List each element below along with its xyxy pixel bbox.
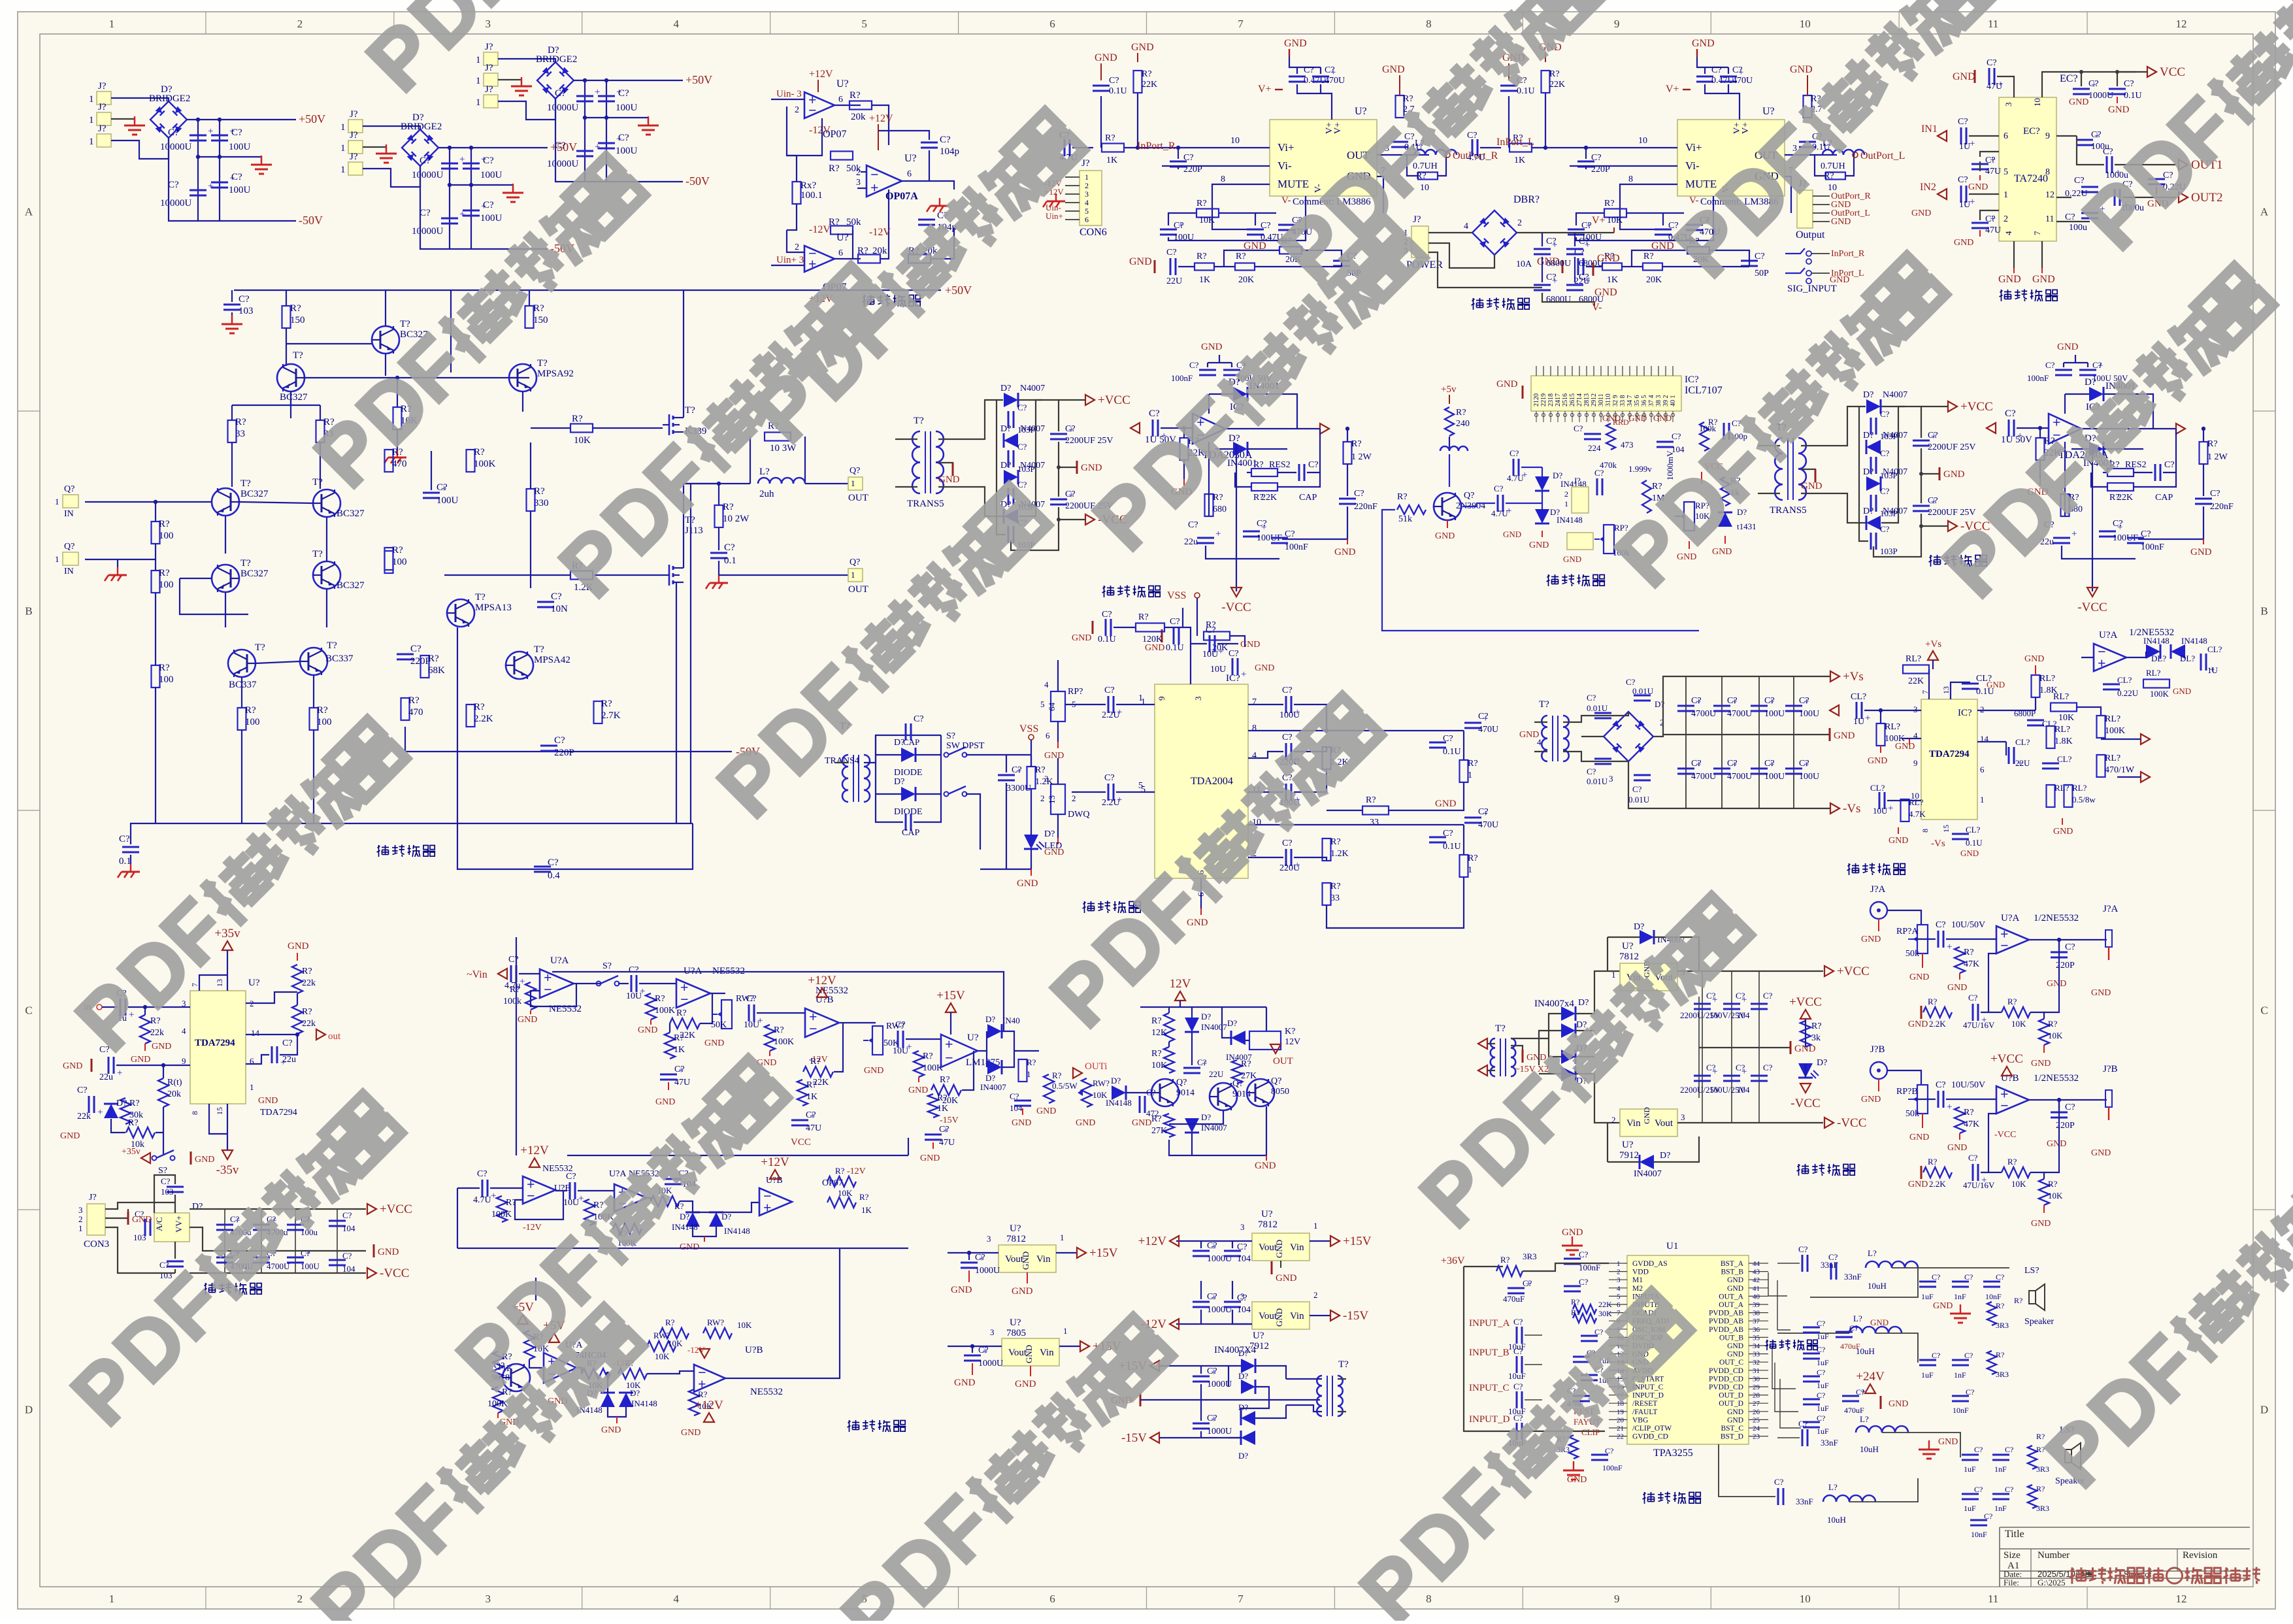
svg-text:13: 13 [1047, 795, 1057, 804]
svg-text:R?: R? [408, 695, 420, 706]
svg-text:3011: 3011 [1598, 393, 1605, 406]
svg-text:TDA2004: TDA2004 [1191, 776, 1233, 787]
svg-text:2: 2 [1085, 181, 1089, 190]
svg-text:1K: 1K [806, 1092, 817, 1102]
svg-text:3: 3 [1240, 1222, 1245, 1232]
svg-text:GND: GND [60, 1131, 80, 1141]
svg-text:47K: 47K [1964, 1119, 1979, 1129]
svg-text:DL?: DL? [2151, 654, 2166, 663]
svg-text:6800U: 6800U [1546, 259, 1571, 269]
svg-text:-Vs: -Vs [1931, 838, 1945, 849]
svg-text:4: 4 [1085, 198, 1089, 207]
svg-text:RL?: RL? [2072, 783, 2087, 793]
svg-text:C?: C? [1828, 1252, 1838, 1262]
svg-text:22: 22 [1617, 1433, 1624, 1441]
svg-text:9: 9 [1157, 697, 1166, 701]
svg-text:V+: V+ [1258, 84, 1272, 95]
svg-text:+15V: +15V [1089, 1246, 1118, 1260]
svg-text:2219: 2219 [1540, 393, 1547, 406]
svg-text:C?: C? [1523, 1278, 1532, 1288]
svg-text:C?: C? [1109, 76, 1119, 86]
svg-text:C?: C? [1207, 1367, 1217, 1376]
svg-text:38: 38 [1753, 1310, 1760, 1317]
svg-text:12: 12 [2176, 1593, 2187, 1605]
svg-text:R?: R? [159, 663, 170, 673]
svg-text:GND: GND [1503, 529, 1521, 539]
svg-text:GND: GND [1908, 1180, 1928, 1189]
svg-text:GND: GND [1255, 1161, 1276, 1171]
svg-text:C?: C? [1849, 1323, 1858, 1333]
svg-text:20k: 20k [167, 1089, 181, 1099]
svg-text:19: 19 [1617, 1408, 1625, 1416]
svg-text:100U: 100U [1799, 772, 1819, 782]
svg-text:10: 10 [1638, 136, 1647, 146]
svg-text:RES2: RES2 [2125, 460, 2147, 470]
svg-text:1: 1 [1617, 1260, 1621, 1268]
svg-text:C?: C? [1229, 649, 1239, 659]
svg-text:C?: C? [161, 1176, 171, 1186]
svg-text:10K: 10K [2048, 1031, 2063, 1040]
svg-text:100K: 100K [2150, 689, 2169, 699]
svg-text:J?A: J?A [1870, 884, 1885, 895]
svg-text:U?: U? [1253, 1331, 1264, 1341]
svg-text:C?: C? [1207, 1241, 1217, 1251]
svg-text:10K: 10K [668, 1338, 683, 1348]
svg-text:R?: R? [674, 1201, 684, 1211]
svg-text:1: 1 [109, 1593, 115, 1605]
svg-text:C?: C? [618, 88, 629, 99]
svg-text:TDA7294: TDA7294 [1929, 749, 1970, 759]
svg-text:GND: GND [1861, 1095, 1881, 1104]
svg-text:OutPort_L: OutPort_L [1860, 150, 1905, 161]
svg-text:10U: 10U [626, 991, 642, 1001]
svg-text:+: + [1218, 646, 1223, 657]
svg-text:5: 5 [1617, 1293, 1621, 1301]
svg-text:C?: C? [1691, 696, 1702, 706]
svg-text:T?: T? [255, 642, 265, 653]
svg-text:Vin: Vin [1626, 1118, 1641, 1129]
svg-text:Title: Title [2005, 1529, 2024, 1540]
svg-text:100: 100 [159, 674, 174, 685]
svg-text:GND: GND [1526, 1053, 1546, 1063]
svg-text:C?: C? [1763, 991, 1773, 1001]
svg-text:29: 29 [1753, 1384, 1760, 1391]
svg-text:4.7U: 4.7U [473, 1195, 491, 1205]
svg-text:1.999v: 1.999v [1628, 464, 1652, 474]
svg-text:GND: GND [1790, 64, 1813, 75]
svg-text:R?: R? [1549, 69, 1560, 79]
svg-text:J?: J? [98, 124, 107, 134]
svg-text:2200UF 25V: 2200UF 25V [1065, 436, 1114, 446]
svg-text:1 2W: 1 2W [1351, 452, 1372, 462]
svg-text:R?: R? [859, 1192, 869, 1202]
svg-text:6: 6 [1980, 765, 1985, 774]
svg-text:R?: R? [534, 486, 545, 497]
svg-text:2: 2 [1040, 793, 1045, 803]
svg-text:9014: 9014 [1176, 1088, 1195, 1098]
svg-text:10K: 10K [655, 1351, 670, 1361]
svg-text:CAP: CAP [1299, 493, 1317, 503]
svg-text:V+: V+ [1666, 84, 1679, 95]
svg-text:1: 1 [78, 1223, 83, 1233]
svg-text:GND: GND [1953, 71, 1975, 82]
svg-text:4: 4 [1252, 751, 1257, 761]
svg-text:IN2: IN2 [1920, 182, 1936, 193]
svg-text:100U: 100U [1279, 710, 1300, 720]
svg-text:C?: C? [77, 1085, 88, 1095]
svg-text:C?: C? [566, 1172, 576, 1182]
svg-text:GND: GND [1889, 836, 1908, 846]
svg-text:GND: GND [1653, 413, 1672, 423]
svg-text:R?: R? [1571, 1308, 1579, 1317]
svg-text:G:\2025: G:\2025 [2037, 1578, 2066, 1587]
svg-text:10000U: 10000U [160, 198, 192, 208]
svg-text:50P: 50P [1755, 269, 1769, 278]
svg-text:C?: C? [975, 1253, 985, 1263]
svg-text:D?: D? [1238, 1451, 1248, 1461]
svg-text:+: + [1947, 1102, 1952, 1112]
svg-text:R?: R? [2048, 1179, 2058, 1189]
svg-text:1uF: 1uF [1817, 1404, 1829, 1413]
svg-text:3: 3 [856, 178, 861, 188]
svg-text:22K: 22K [2117, 493, 2133, 503]
svg-text:C?: C? [1513, 1346, 1523, 1356]
svg-text:C?: C? [1282, 838, 1293, 848]
svg-text:+15V: +15V [1343, 1235, 1372, 1248]
svg-text:22U: 22U [1209, 1069, 1224, 1079]
svg-text:R?: R? [245, 705, 256, 716]
svg-text:100: 100 [159, 531, 174, 541]
svg-text:GND: GND [2108, 105, 2130, 115]
svg-text:1uF: 1uF [1817, 1332, 1829, 1341]
svg-text:2: 2 [1611, 1115, 1616, 1125]
svg-text:Q?: Q? [1271, 1076, 1281, 1086]
svg-text:1000U: 1000U [2088, 91, 2113, 101]
svg-text:C?: C? [1880, 524, 1890, 534]
svg-text:C?: C? [1257, 519, 1267, 529]
svg-text:GND: GND [2053, 827, 2073, 837]
svg-text:T?: T? [914, 416, 924, 426]
svg-text:1: 1 [89, 137, 94, 147]
svg-text:50k: 50k [1905, 1109, 1919, 1119]
svg-text:1: 1 [89, 94, 94, 105]
svg-text:R?: R? [1196, 199, 1207, 208]
svg-text:0.1: 0.1 [724, 555, 736, 566]
svg-text:C?: C? [914, 714, 924, 724]
svg-text:35: 35 [1753, 1334, 1760, 1342]
svg-text:C?: C? [1149, 408, 1160, 419]
svg-text:27K: 27K [1241, 1071, 1257, 1081]
svg-text:15: 15 [215, 1107, 224, 1115]
svg-text:1.8K: 1.8K [2054, 737, 2073, 746]
svg-text:C?: C? [1513, 1317, 1523, 1327]
svg-text:4700U: 4700U [1691, 709, 1716, 719]
svg-text:C?: C? [1237, 1293, 1247, 1303]
svg-text:C?: C? [1546, 273, 1557, 282]
svg-text:J?: J? [485, 42, 493, 52]
svg-text:IN4007X4: IN4007X4 [1214, 1345, 1257, 1355]
svg-text:C?: C? [483, 200, 494, 210]
svg-text:1: 1 [1313, 1221, 1318, 1231]
svg-text:2.2K: 2.2K [474, 714, 493, 724]
svg-text:+50V: +50V [945, 284, 972, 297]
svg-text:5: 5 [2004, 167, 2008, 177]
svg-text:C?: C? [420, 156, 431, 166]
svg-text:C?: C? [1104, 773, 1115, 783]
svg-text:R?: R? [698, 1389, 708, 1399]
svg-text:100: 100 [159, 580, 174, 590]
svg-text:+: + [578, 1193, 584, 1204]
svg-text:10U: 10U [744, 1020, 759, 1030]
svg-text:33: 33 [1753, 1351, 1760, 1359]
svg-text:7: 7 [1238, 18, 1244, 30]
svg-text:4700U: 4700U [267, 1261, 290, 1271]
svg-text:104: 104 [1237, 1305, 1251, 1315]
svg-text:R?: R? [1105, 133, 1115, 143]
svg-text:R?: R? [1330, 882, 1341, 891]
svg-text:GND: GND [1284, 38, 1307, 49]
svg-text:GND: GND [1868, 756, 1887, 766]
svg-text:R?: R? [1027, 1057, 1036, 1067]
svg-text:104: 104 [1737, 1010, 1750, 1020]
svg-text:−: − [2000, 937, 2009, 953]
svg-text:R?: R? [159, 568, 170, 578]
svg-text:U?: U? [967, 1033, 979, 1043]
svg-text:U?B: U?B [766, 1176, 783, 1185]
svg-text:BRIDGE2: BRIDGE2 [536, 54, 577, 65]
svg-text:R?: R? [1151, 1049, 1162, 1059]
svg-text:GND: GND [1831, 217, 1851, 227]
svg-text:47U/16V: 47U/16V [1963, 1180, 1995, 1190]
svg-text:30: 30 [1753, 1375, 1760, 1383]
svg-text:GND: GND [2190, 547, 2212, 557]
svg-text:D?: D? [1044, 829, 1055, 839]
svg-text:VSS: VSS [1019, 723, 1038, 735]
svg-text:C?: C? [1966, 1387, 1974, 1397]
svg-text:C?: C? [282, 1038, 293, 1048]
svg-text:GND: GND [1909, 1133, 1929, 1142]
svg-text:IN: IN [64, 567, 74, 576]
svg-text:2912: 2912 [1591, 393, 1598, 406]
svg-text:+12V: +12V [695, 1399, 723, 1412]
svg-text:6800U: 6800U [1546, 295, 1571, 305]
svg-text:R?: R? [474, 447, 485, 457]
svg-text:12V: 12V [1285, 1037, 1300, 1047]
svg-text:GND: GND [1954, 238, 1973, 248]
svg-text:C?: C? [1880, 448, 1890, 458]
svg-text:2: 2 [78, 1214, 83, 1224]
svg-text:100U: 100U [480, 170, 503, 180]
svg-text:R?: R? [601, 699, 612, 709]
svg-text:+24V: +24V [1856, 1370, 1885, 1384]
svg-text:100U: 100U [1764, 709, 1785, 719]
svg-text:0.1: 0.1 [119, 856, 131, 867]
svg-text:SIG_INPUT: SIG_INPUT [1787, 284, 1837, 294]
svg-text:U?: U? [1622, 1140, 1634, 1150]
svg-text:1uF: 1uF [1964, 1465, 1976, 1474]
svg-text:GND: GND [938, 474, 960, 485]
svg-text:GND: GND [1562, 1227, 1583, 1238]
svg-text:36: 36 [1753, 1326, 1760, 1334]
svg-text:D?: D? [1000, 461, 1011, 471]
svg-text:68K: 68K [428, 665, 445, 676]
svg-text:224: 224 [1588, 443, 1601, 453]
svg-text:IN4007: IN4007 [1634, 1169, 1662, 1179]
svg-text:M1: M1 [1632, 1276, 1643, 1284]
svg-text:3R3: 3R3 [1996, 1370, 2009, 1379]
svg-text:T?: T? [312, 549, 323, 559]
svg-text:D?: D? [1863, 390, 1873, 400]
svg-text:1K: 1K [1106, 156, 1117, 165]
svg-text:LED: LED [1044, 841, 1062, 851]
svg-text:T?: T? [1539, 699, 1549, 710]
svg-text:11: 11 [2045, 214, 2054, 224]
svg-text:3: 3 [78, 1205, 83, 1215]
svg-text:C?: C? [1928, 431, 1938, 440]
svg-text:100K: 100K [2105, 726, 2125, 736]
svg-text:GND: GND [1727, 1408, 1743, 1416]
svg-text:0.22U: 0.22U [2117, 688, 2139, 698]
svg-text:2: 2 [856, 168, 861, 178]
svg-text:GND: GND [920, 1153, 940, 1163]
svg-text:C?: C? [939, 1125, 949, 1135]
svg-text:GND: GND [2047, 1139, 2066, 1149]
svg-text:C?: C? [895, 1020, 906, 1030]
svg-text:R?: R? [1236, 252, 1246, 261]
svg-text:BC327: BC327 [240, 569, 269, 579]
svg-text:GND: GND [601, 1425, 621, 1435]
svg-text:-12V: -12V [809, 125, 831, 136]
svg-text:IN4148: IN4148 [672, 1222, 698, 1232]
svg-text:INPUT_A: INPUT_A [1469, 1318, 1510, 1329]
svg-text:R?: R? [1397, 492, 1408, 502]
svg-text:R?: R? [1253, 460, 1264, 470]
svg-text:J?: J? [1574, 476, 1581, 486]
svg-text:22k: 22k [77, 1112, 91, 1121]
svg-text:R?: R? [665, 1317, 675, 1327]
svg-text:+35v: +35v [122, 1147, 140, 1157]
svg-text:L?: L? [1828, 1482, 1838, 1492]
svg-text:10nF: 10nF [1971, 1530, 1987, 1539]
svg-text:1: 1 [476, 76, 481, 86]
svg-text:6: 6 [2004, 131, 2008, 141]
svg-text:C?: C? [1987, 58, 1997, 68]
svg-text:C?: C? [1174, 221, 1184, 231]
svg-text:C?: C? [1206, 625, 1216, 635]
svg-text:GND: GND [1021, 1251, 1031, 1270]
svg-text:BST_A: BST_A [1721, 1260, 1744, 1268]
svg-text:10000U: 10000U [412, 170, 444, 180]
svg-text:C?: C? [1010, 1091, 1019, 1101]
svg-text:C?: C? [1958, 175, 1968, 185]
svg-text:3110: 3110 [1605, 393, 1612, 406]
svg-text:D?: D? [1576, 1020, 1587, 1030]
svg-text:R?: R? [474, 702, 485, 712]
svg-text:A: A [25, 206, 33, 218]
svg-text:C?: C? [1467, 131, 1477, 141]
svg-text:INPUT_C: INPUT_C [1469, 1383, 1509, 1393]
svg-text:C?: C? [1188, 520, 1198, 530]
svg-text:D: D [25, 1404, 33, 1416]
svg-text:1uF: 1uF [1964, 1504, 1976, 1513]
svg-text:22K: 22K [1261, 493, 1277, 503]
svg-text:R?: R? [1964, 948, 1974, 957]
svg-text:RL?: RL? [2105, 714, 2120, 724]
svg-text:−: − [527, 1187, 535, 1204]
svg-text:U?A: U?A [2001, 913, 2019, 923]
svg-text:C?: C? [1017, 403, 1027, 412]
svg-text:C?: C? [420, 208, 431, 218]
svg-text:R?: R? [1468, 759, 1478, 769]
svg-text:C?: C? [1774, 1477, 1784, 1487]
svg-text:GND: GND [1968, 182, 1988, 192]
svg-text:CL?: CL? [2015, 737, 2030, 747]
svg-text:103P: 103P [1017, 464, 1035, 474]
svg-text:D?: D? [1660, 1151, 1670, 1161]
svg-text:10nF: 10nF [1985, 1292, 2002, 1301]
svg-text:U?A: U?A [2099, 630, 2117, 640]
svg-text:−: − [680, 991, 689, 1007]
svg-text:+: + [1215, 529, 1221, 539]
svg-text:R?: R? [1928, 1157, 1938, 1167]
svg-text:R?: R? [829, 163, 840, 174]
svg-text:1K: 1K [1199, 275, 1210, 285]
svg-text:GND: GND [132, 1215, 152, 1225]
svg-text:C?: C? [2065, 942, 2075, 952]
svg-text:0.01U: 0.01U [1628, 795, 1650, 804]
svg-text:GND: GND [1072, 633, 1091, 643]
svg-text:+: + [763, 1199, 772, 1216]
svg-text:GND: GND [1012, 1286, 1033, 1297]
svg-text:6: 6 [838, 248, 843, 258]
svg-text:3: 3 [1085, 190, 1089, 199]
svg-text:IN4007x4: IN4007x4 [1534, 999, 1574, 1009]
svg-text:−: − [544, 981, 552, 997]
svg-text:GND: GND [908, 1085, 928, 1095]
svg-text:47U: 47U [1987, 82, 2002, 91]
svg-text:2516: 2516 [1562, 393, 1569, 406]
svg-text:C?: C? [1207, 1414, 1217, 1423]
svg-text:GND: GND [681, 1428, 701, 1438]
svg-text:-VCC: -VCC [2077, 601, 2107, 614]
svg-text:34 7: 34 7 [1626, 395, 1634, 407]
svg-text:150: 150 [533, 315, 548, 325]
svg-text:R?: R? [593, 1201, 604, 1210]
svg-text:240: 240 [1456, 419, 1470, 429]
svg-text:0.1U: 0.1U [1109, 86, 1127, 96]
svg-text:IN4148: IN4148 [1557, 515, 1583, 525]
svg-text:C?: C? [1798, 1244, 1808, 1254]
svg-text:T?: T? [240, 558, 251, 569]
svg-text:R?: R? [1604, 199, 1615, 208]
svg-text:36 5: 36 5 [1641, 395, 1648, 407]
svg-text:R?: R? [857, 246, 868, 256]
svg-text:7: 7 [2032, 231, 2042, 235]
svg-text:Vin: Vin [1036, 1254, 1051, 1265]
svg-text:30K: 30K [1598, 1309, 1612, 1318]
svg-text:1: 1 [1468, 771, 1472, 780]
svg-text:C?: C? [1591, 153, 1602, 163]
svg-text:GND: GND [1044, 751, 1064, 761]
svg-text:+: + [808, 256, 817, 272]
svg-text:EC?: EC? [2060, 73, 2078, 84]
svg-text:4: 4 [182, 1026, 186, 1036]
svg-text:-VCC: -VCC [1994, 1130, 2016, 1140]
svg-text:BC327: BC327 [240, 489, 269, 499]
svg-text:U?: U? [1010, 1223, 1021, 1234]
svg-text:C?: C? [1964, 1351, 1973, 1360]
svg-text:+: + [1865, 713, 1870, 723]
